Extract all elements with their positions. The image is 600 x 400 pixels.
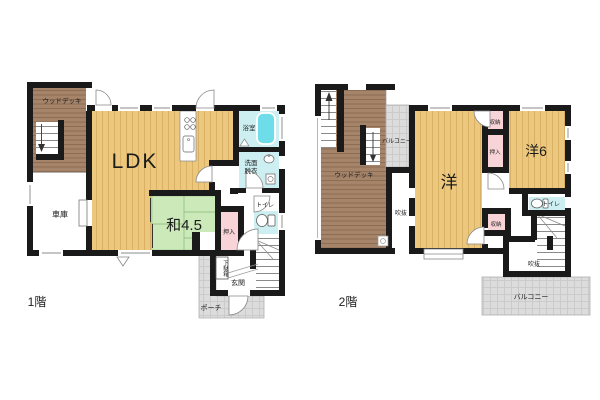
wood-deck-f2-label: ウッドデッキ [335, 170, 374, 179]
storage-upper-label: 収納 [489, 118, 501, 126]
toilet-f1-label: トイレ [256, 203, 274, 209]
floorplan-canvas: ウッドデッキ LDK 車庫 浴室 洗面 脱衣 和4.5 押入 トイレ 下駄箱 玄… [0, 0, 600, 400]
balcony-upper-label: バルコニー [382, 138, 412, 145]
washroom-label-line2: 脱衣 [245, 166, 259, 175]
closet-f2-label: 押入 [489, 148, 501, 156]
stairs-f1 [256, 238, 279, 290]
western-room6-label: 洋6 [525, 143, 547, 159]
floor2-plan: ウッドデッキ バルコニー 洋 収納 押入 洋6 トイレ 吹抜 収納 吹抜 バルコ… [315, 84, 590, 315]
entrance-label: 玄関 [231, 278, 245, 287]
porch-label: ポーチ [201, 304, 222, 312]
void-upper-label: 吹抜 [395, 209, 407, 217]
bathtub-icon [257, 113, 275, 144]
bay-window [424, 249, 463, 259]
washing-machine-icon [266, 174, 275, 184]
bath-label: 浴室 [243, 123, 257, 132]
ldk-door-mark [117, 257, 129, 266]
tokonoma-notch [200, 232, 217, 250]
ldk-label: LDK [112, 150, 159, 173]
shoe-cabinet-label: 下駄箱 [222, 260, 229, 278]
floor1-plan: ウッドデッキ LDK 車庫 浴室 洗面 脱衣 和4.5 押入 トイレ 下駄箱 玄… [27, 82, 285, 318]
washroom-label-line1: 洗面 [245, 158, 259, 167]
western-room-label: 洋 [441, 173, 458, 192]
garage-label: 車庫 [52, 209, 68, 219]
japanese-room-label: 和4.5 [166, 217, 202, 234]
washbasin-icon [264, 155, 274, 164]
deck-steps-f1 [36, 122, 58, 154]
deck-fixture-icon [378, 236, 388, 246]
storage-lower-label: 収納 [490, 220, 502, 228]
toilet-icon [257, 215, 276, 227]
void-lower-label: 吹抜 [528, 260, 540, 268]
wood-deck-f1-label: ウッドデッキ [43, 96, 82, 105]
floorplan: ウッドデッキ LDK 車庫 浴室 洗面 脱衣 和4.5 押入 トイレ 下駄箱 玄… [0, 0, 600, 400]
balcony-lower-label: バルコニー [514, 293, 549, 301]
kitchen-sink-icon [183, 136, 194, 152]
garage-door-leaf [79, 200, 87, 226]
room-balcony-upper [386, 105, 409, 167]
toilet-f2-label: トイレ [542, 202, 560, 208]
closet-f1-label: 押入 [223, 228, 235, 236]
floor1-name-label: 1階 [28, 294, 47, 309]
floor2-name-label: 2階 [339, 294, 358, 309]
